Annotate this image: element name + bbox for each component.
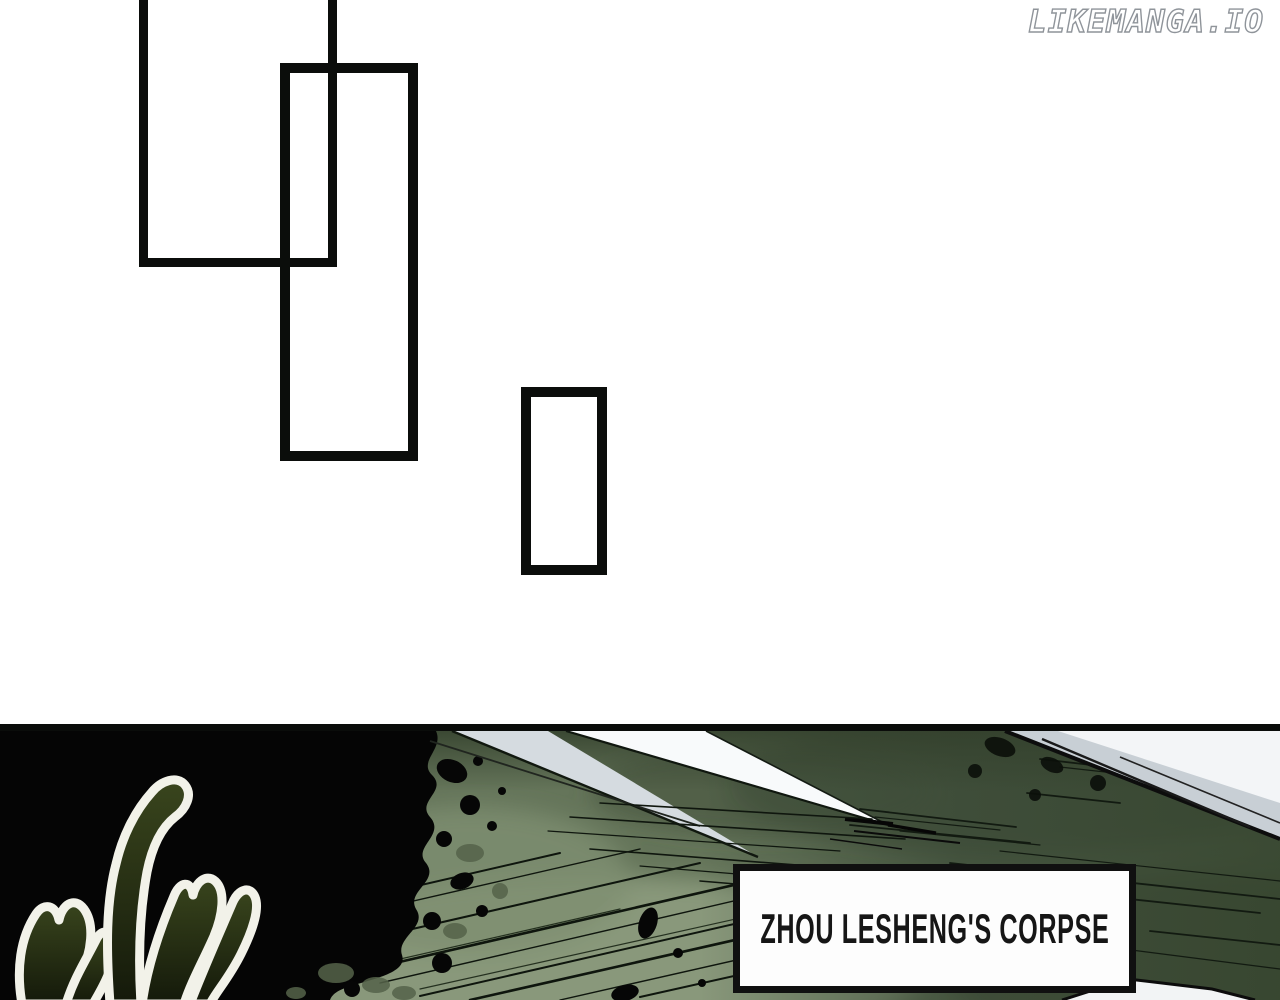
site-watermark: LIKEMANGA.IO [1028, 4, 1264, 40]
caption-text: ZHOU LESHENG'S CORPSE [760, 905, 1109, 953]
empty-panel-frame-2 [280, 63, 418, 461]
empty-panel-frame-3 [521, 387, 607, 575]
caption-box: ZHOU LESHENG'S CORPSE [733, 864, 1136, 993]
manga-panel: ZHOU LESHENG'S CORPSE [0, 724, 1280, 1000]
manga-reader-page: LIKEMANGA.IO [0, 0, 1280, 1000]
